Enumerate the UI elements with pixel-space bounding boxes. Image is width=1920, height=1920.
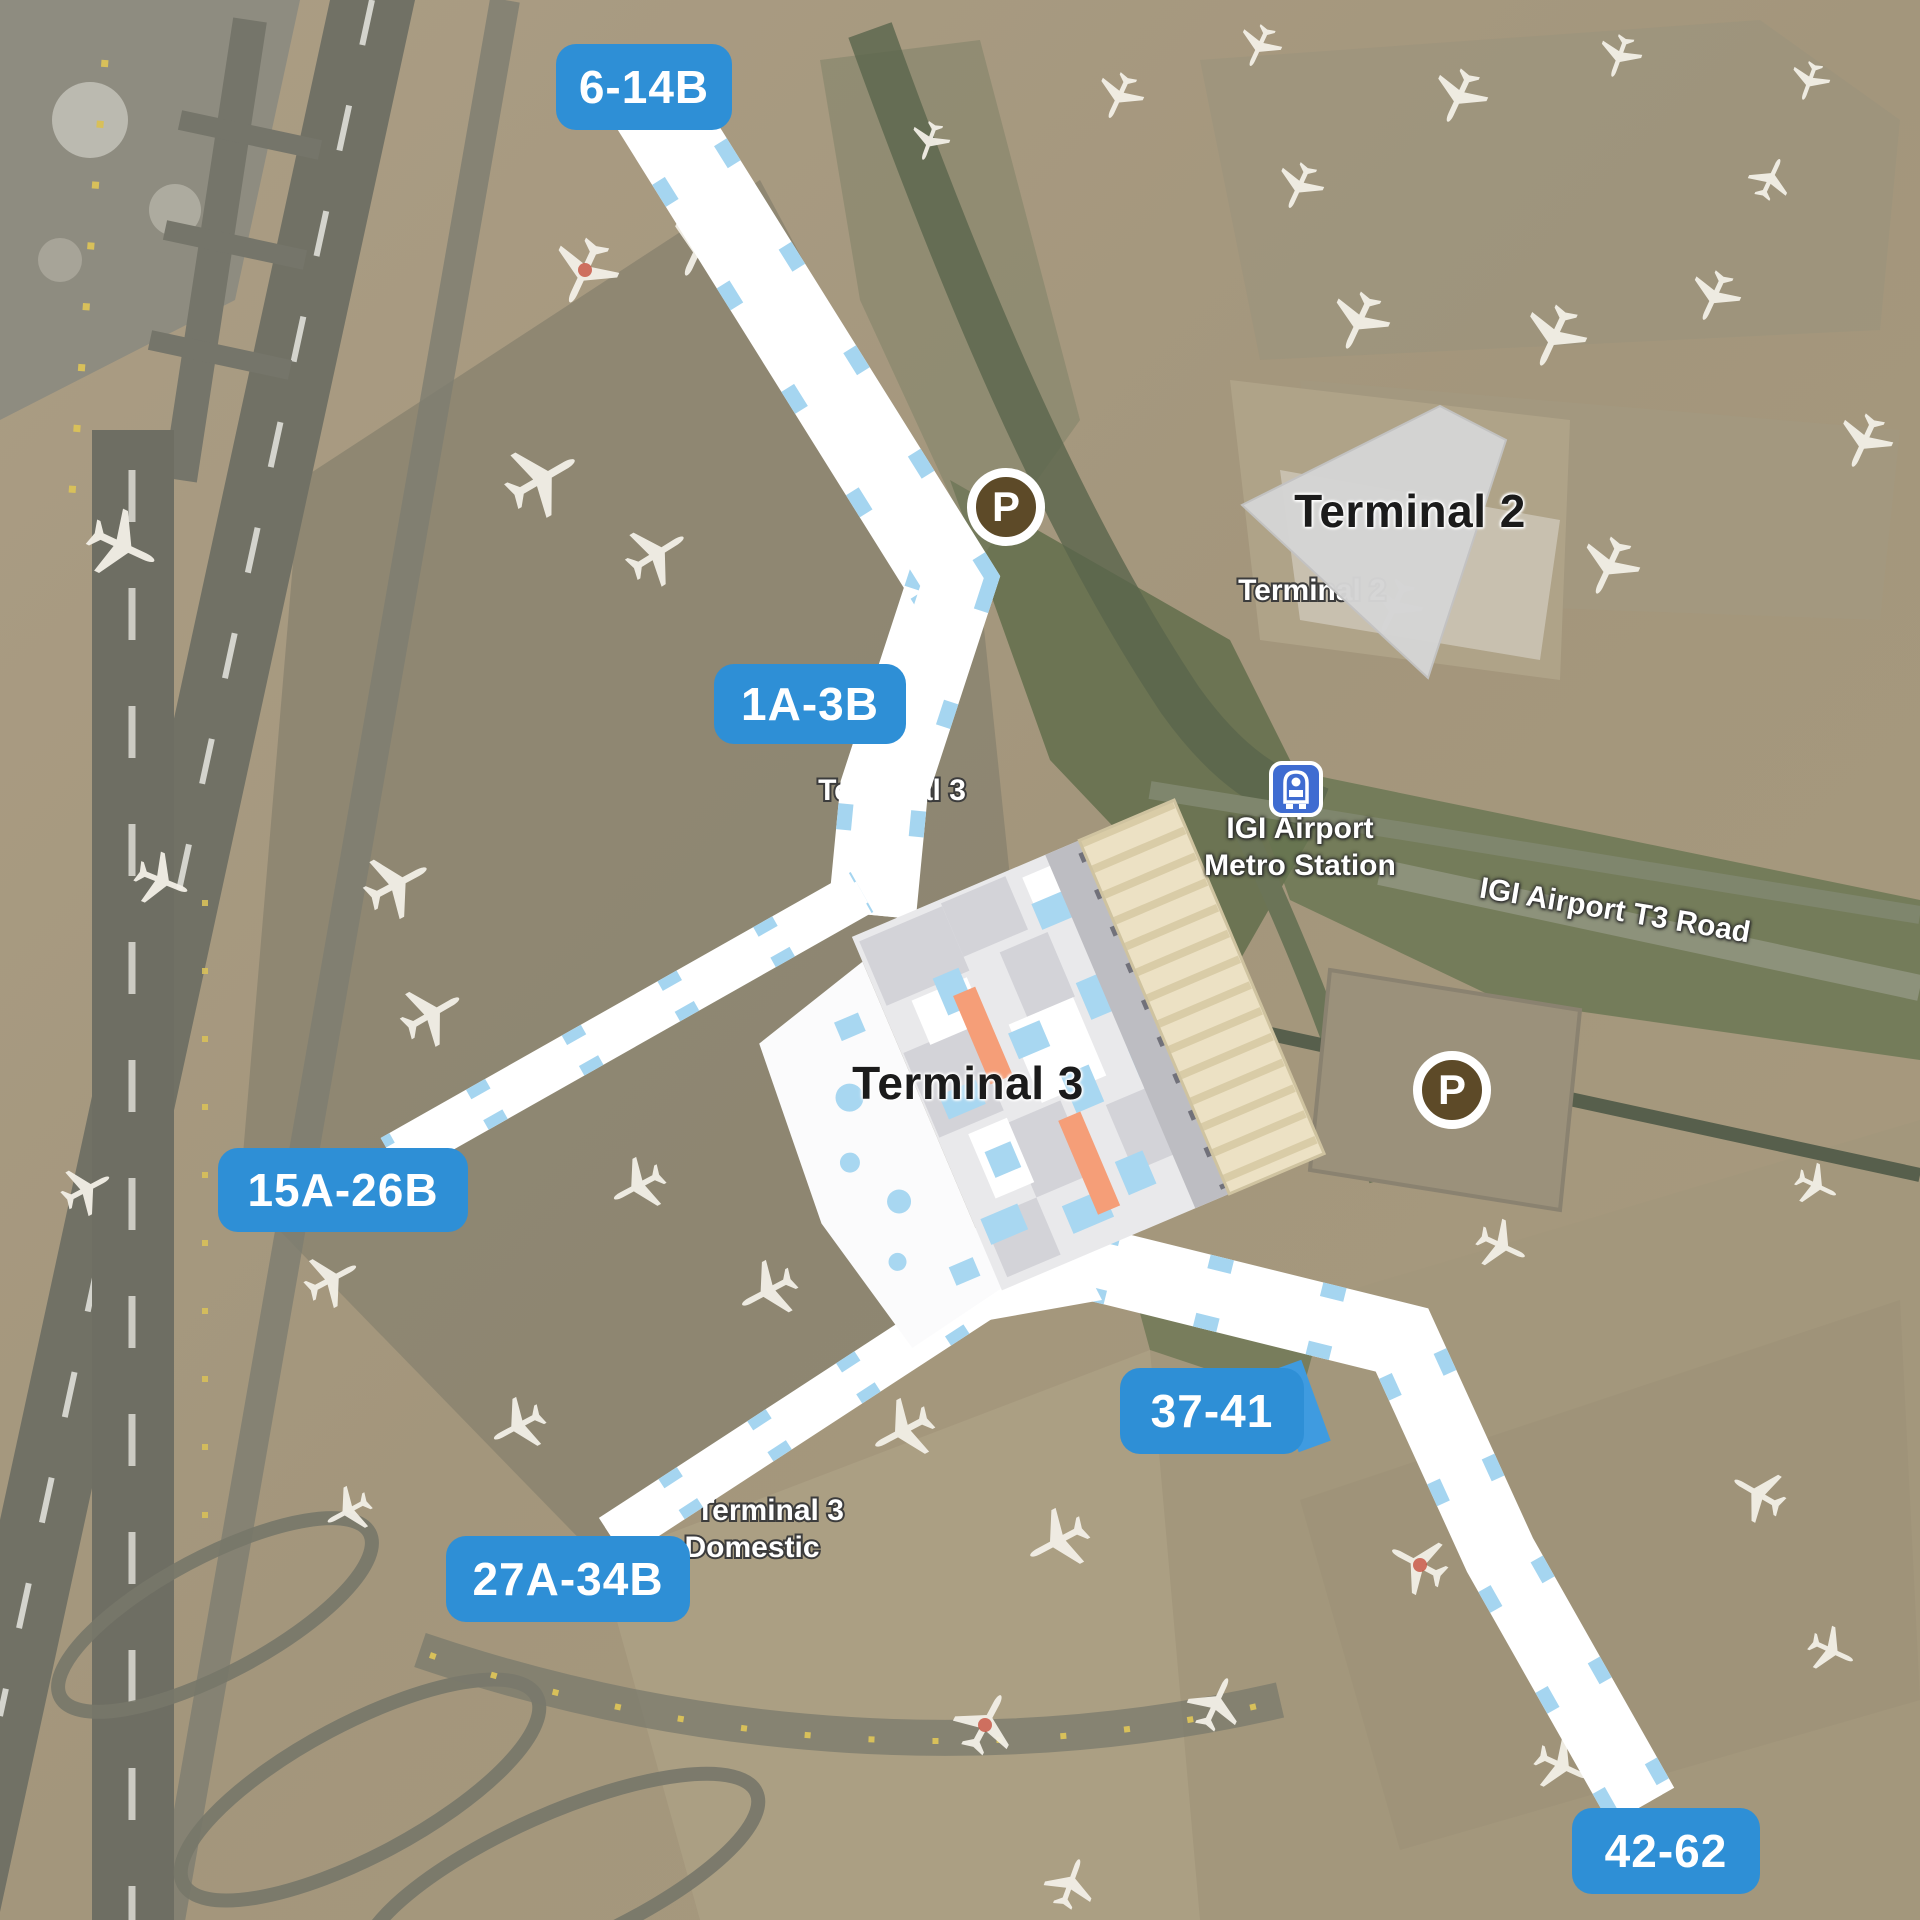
map-canvas: Terminal 3 Terminal 2 Terminal 3 Domesti… bbox=[0, 0, 1920, 1920]
terminal3-domestic-label-line1: Terminal 3 bbox=[696, 1494, 844, 1527]
metro-station-label-line2: Metro Station bbox=[1130, 847, 1470, 884]
gate-badge-1A-3B[interactable]: 1A-3B bbox=[714, 664, 906, 744]
gate-badge-42-62[interactable]: 42-62 bbox=[1572, 1808, 1760, 1894]
gate-badge-37-41[interactable]: 37-41 bbox=[1120, 1368, 1304, 1454]
metro-station-label[interactable]: IGI Airport Metro Station bbox=[1130, 810, 1470, 884]
gate-badge-6-14B[interactable]: 6-14B bbox=[556, 44, 732, 130]
metro-station-icon[interactable] bbox=[1268, 760, 1324, 818]
parking-icon-terminal2[interactable]: P bbox=[967, 468, 1045, 546]
gate-badge-27A-34B[interactable]: 27A-34B bbox=[446, 1536, 690, 1622]
gate-badge-15A-26B[interactable]: 15A-26B bbox=[218, 1148, 468, 1232]
terminal3-label: Terminal 3 bbox=[788, 1056, 1148, 1110]
terminal2-label: Terminal 2 bbox=[1250, 484, 1570, 538]
airport-satellite-map[interactable]: Terminal 3 Terminal 2 Terminal 3 Domesti… bbox=[0, 0, 1920, 1920]
parking-icon-terminal3[interactable]: P bbox=[1413, 1051, 1491, 1129]
terminal3-domestic-label-line2: Domestic bbox=[684, 1531, 819, 1564]
